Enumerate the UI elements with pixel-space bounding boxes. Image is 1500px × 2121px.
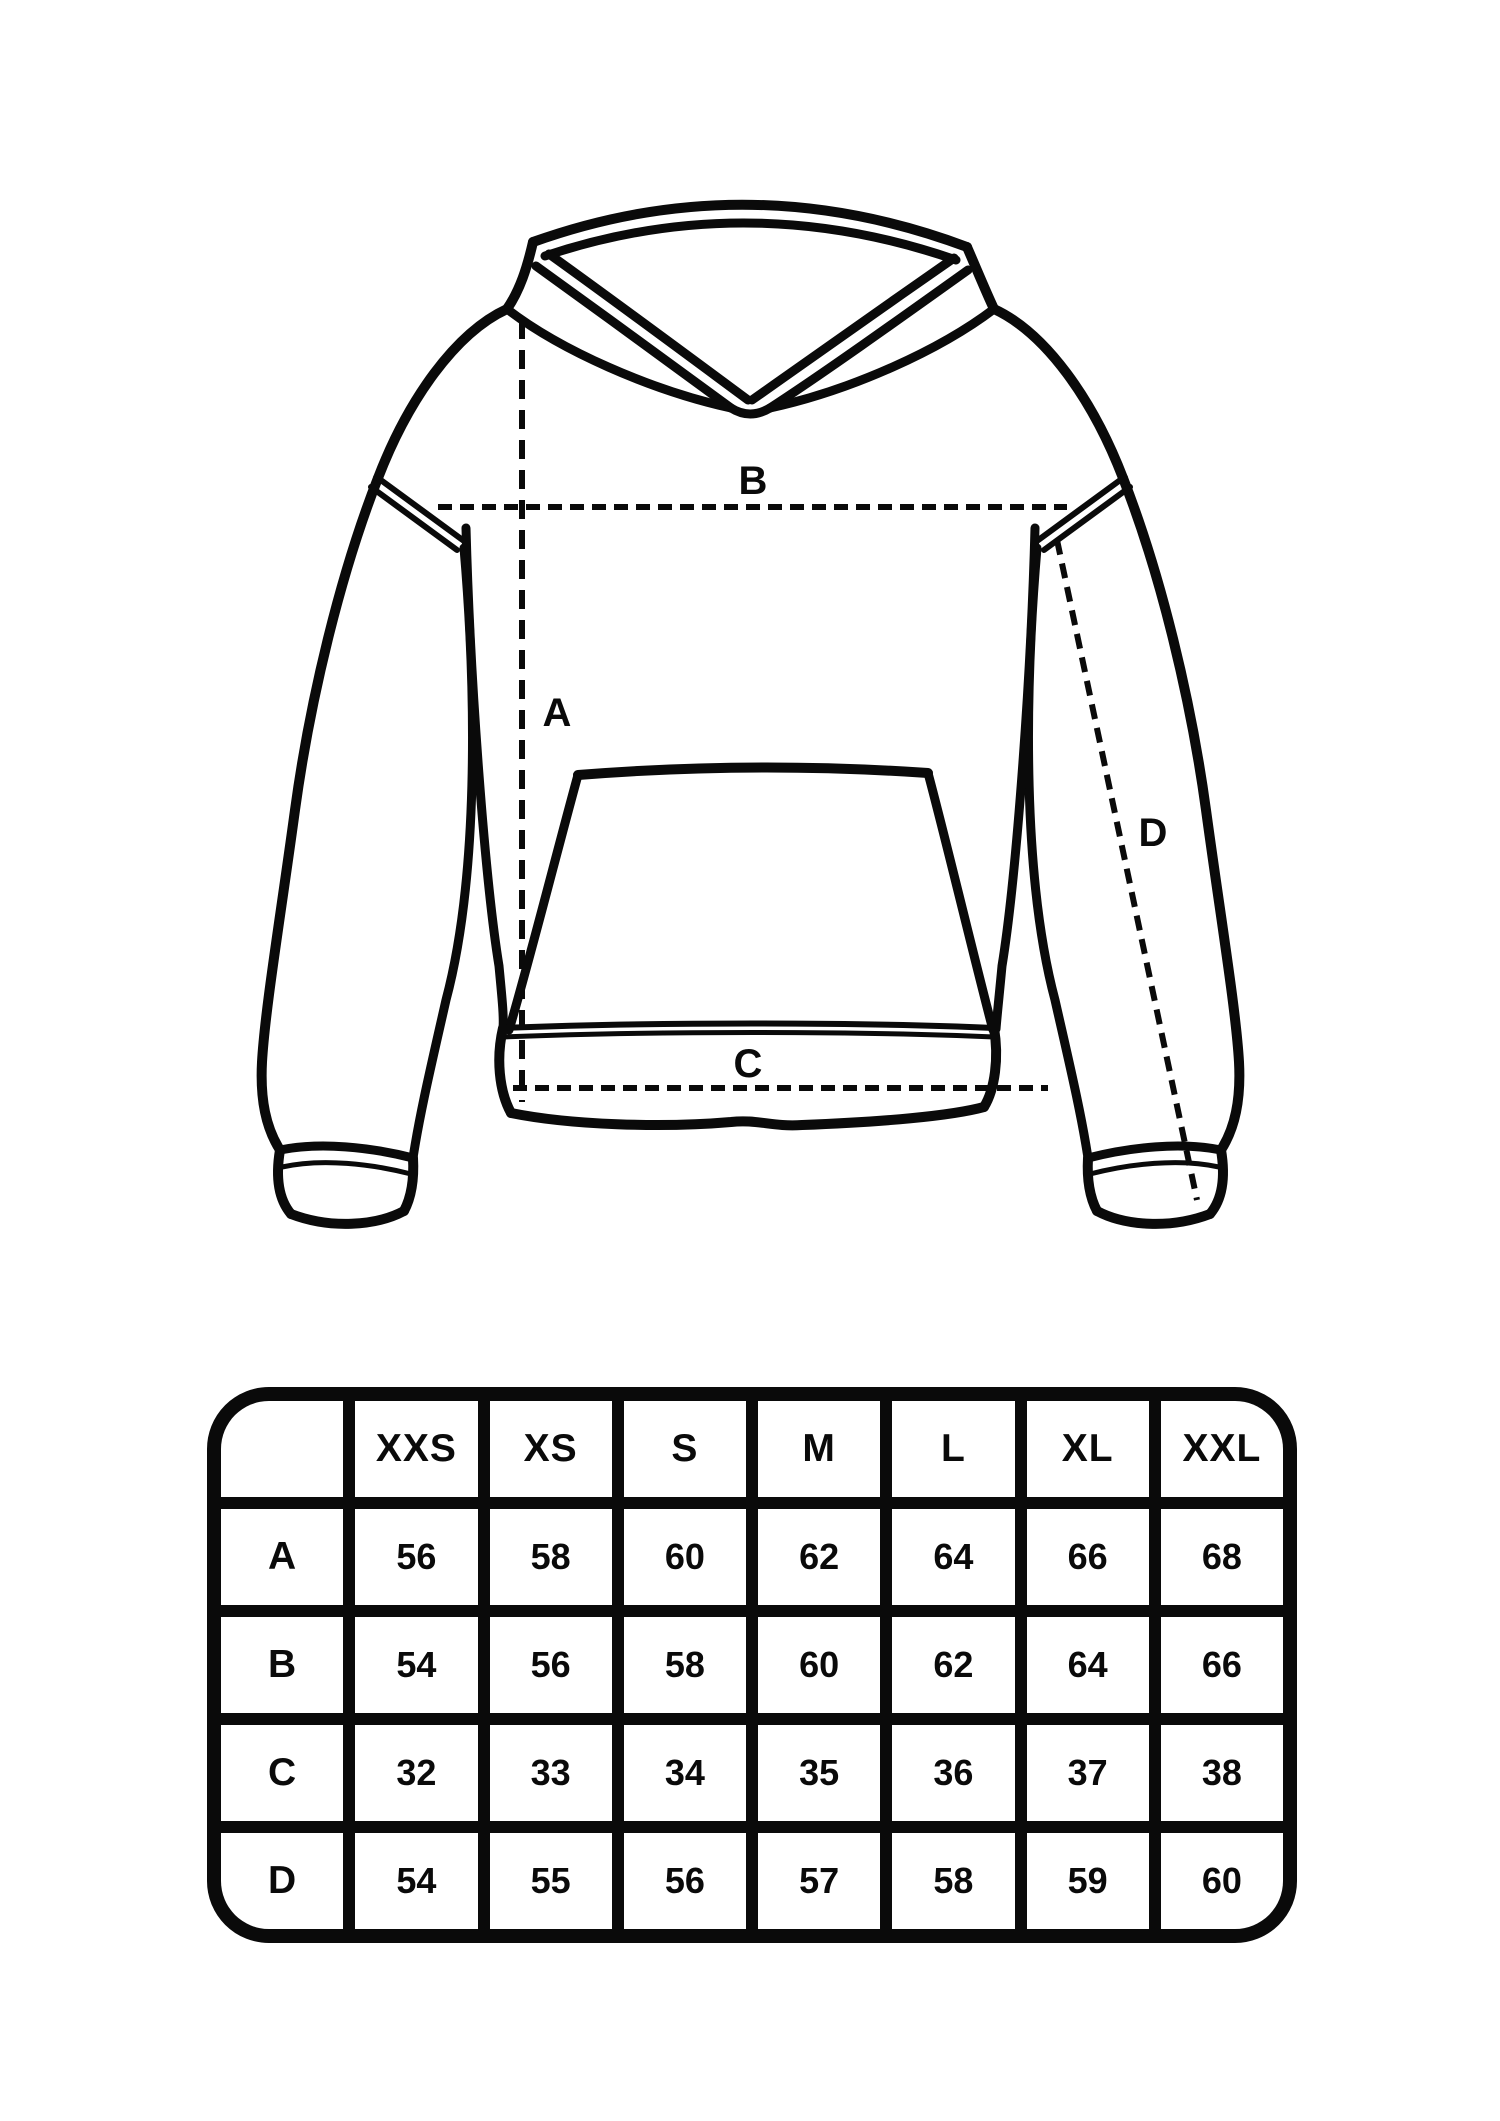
row-label-c: C [221, 1725, 343, 1821]
size-col-header-blank [221, 1401, 343, 1497]
size-table: XXS XS S M L XL XXL A 56 58 60 62 64 66 … [207, 1387, 1297, 1943]
size-cell-a-m: 62 [758, 1509, 880, 1605]
size-cell-c-xxl: 38 [1161, 1725, 1283, 1821]
body-outline [466, 528, 1035, 1029]
size-cell-a-xl: 66 [1027, 1509, 1149, 1605]
size-cell-b-l: 62 [892, 1617, 1014, 1713]
size-col-header-xs: XS [490, 1401, 612, 1497]
row-label-b: B [221, 1617, 343, 1713]
size-cell-c-m: 35 [758, 1725, 880, 1821]
size-cell-d-xxl: 60 [1161, 1833, 1283, 1929]
left-sleeve-outline [262, 309, 507, 1224]
measure-label-c: C [734, 1042, 763, 1086]
size-cell-a-l: 64 [892, 1509, 1014, 1605]
size-col-header-s: S [624, 1401, 746, 1497]
pocket-outline [509, 767, 993, 1030]
size-col-header-xl: XL [1027, 1401, 1149, 1497]
size-col-header-xxl: XXL [1161, 1401, 1283, 1497]
row-label-d: D [221, 1833, 343, 1929]
size-cell-a-xs: 58 [490, 1509, 612, 1605]
size-cell-c-xs: 33 [490, 1725, 612, 1821]
hood-outline [507, 205, 994, 414]
size-cell-d-l: 58 [892, 1833, 1014, 1929]
size-cell-b-xs: 56 [490, 1617, 612, 1713]
size-cell-d-m: 57 [758, 1833, 880, 1929]
size-col-header-xxs: XXS [355, 1401, 477, 1497]
size-cell-b-s: 58 [624, 1617, 746, 1713]
size-cell-d-s: 56 [624, 1833, 746, 1929]
size-cell-c-l: 36 [892, 1725, 1014, 1821]
measure-label-b: B [739, 459, 768, 503]
size-cell-d-xxs: 54 [355, 1833, 477, 1929]
size-cell-a-xxl: 68 [1161, 1509, 1283, 1605]
size-cell-a-s: 60 [624, 1509, 746, 1605]
hoodie-measurement-diagram: A B C D [0, 0, 1500, 1345]
size-col-header-l: L [892, 1401, 1014, 1497]
size-cell-c-xl: 37 [1027, 1725, 1149, 1821]
measure-label-d: D [1139, 811, 1168, 855]
size-col-header-m: M [758, 1401, 880, 1497]
measure-label-a: A [543, 691, 572, 735]
size-cell-b-xxs: 54 [355, 1617, 477, 1713]
size-cell-b-xl: 64 [1027, 1617, 1149, 1713]
size-cell-a-xxs: 56 [355, 1509, 477, 1605]
size-cell-d-xl: 59 [1027, 1833, 1149, 1929]
size-cell-c-s: 34 [624, 1725, 746, 1821]
size-cell-b-m: 60 [758, 1617, 880, 1713]
size-cell-d-xs: 55 [490, 1833, 612, 1929]
size-cell-b-xxl: 66 [1161, 1617, 1283, 1713]
size-cell-c-xxs: 32 [355, 1725, 477, 1821]
row-label-a: A [221, 1509, 343, 1605]
